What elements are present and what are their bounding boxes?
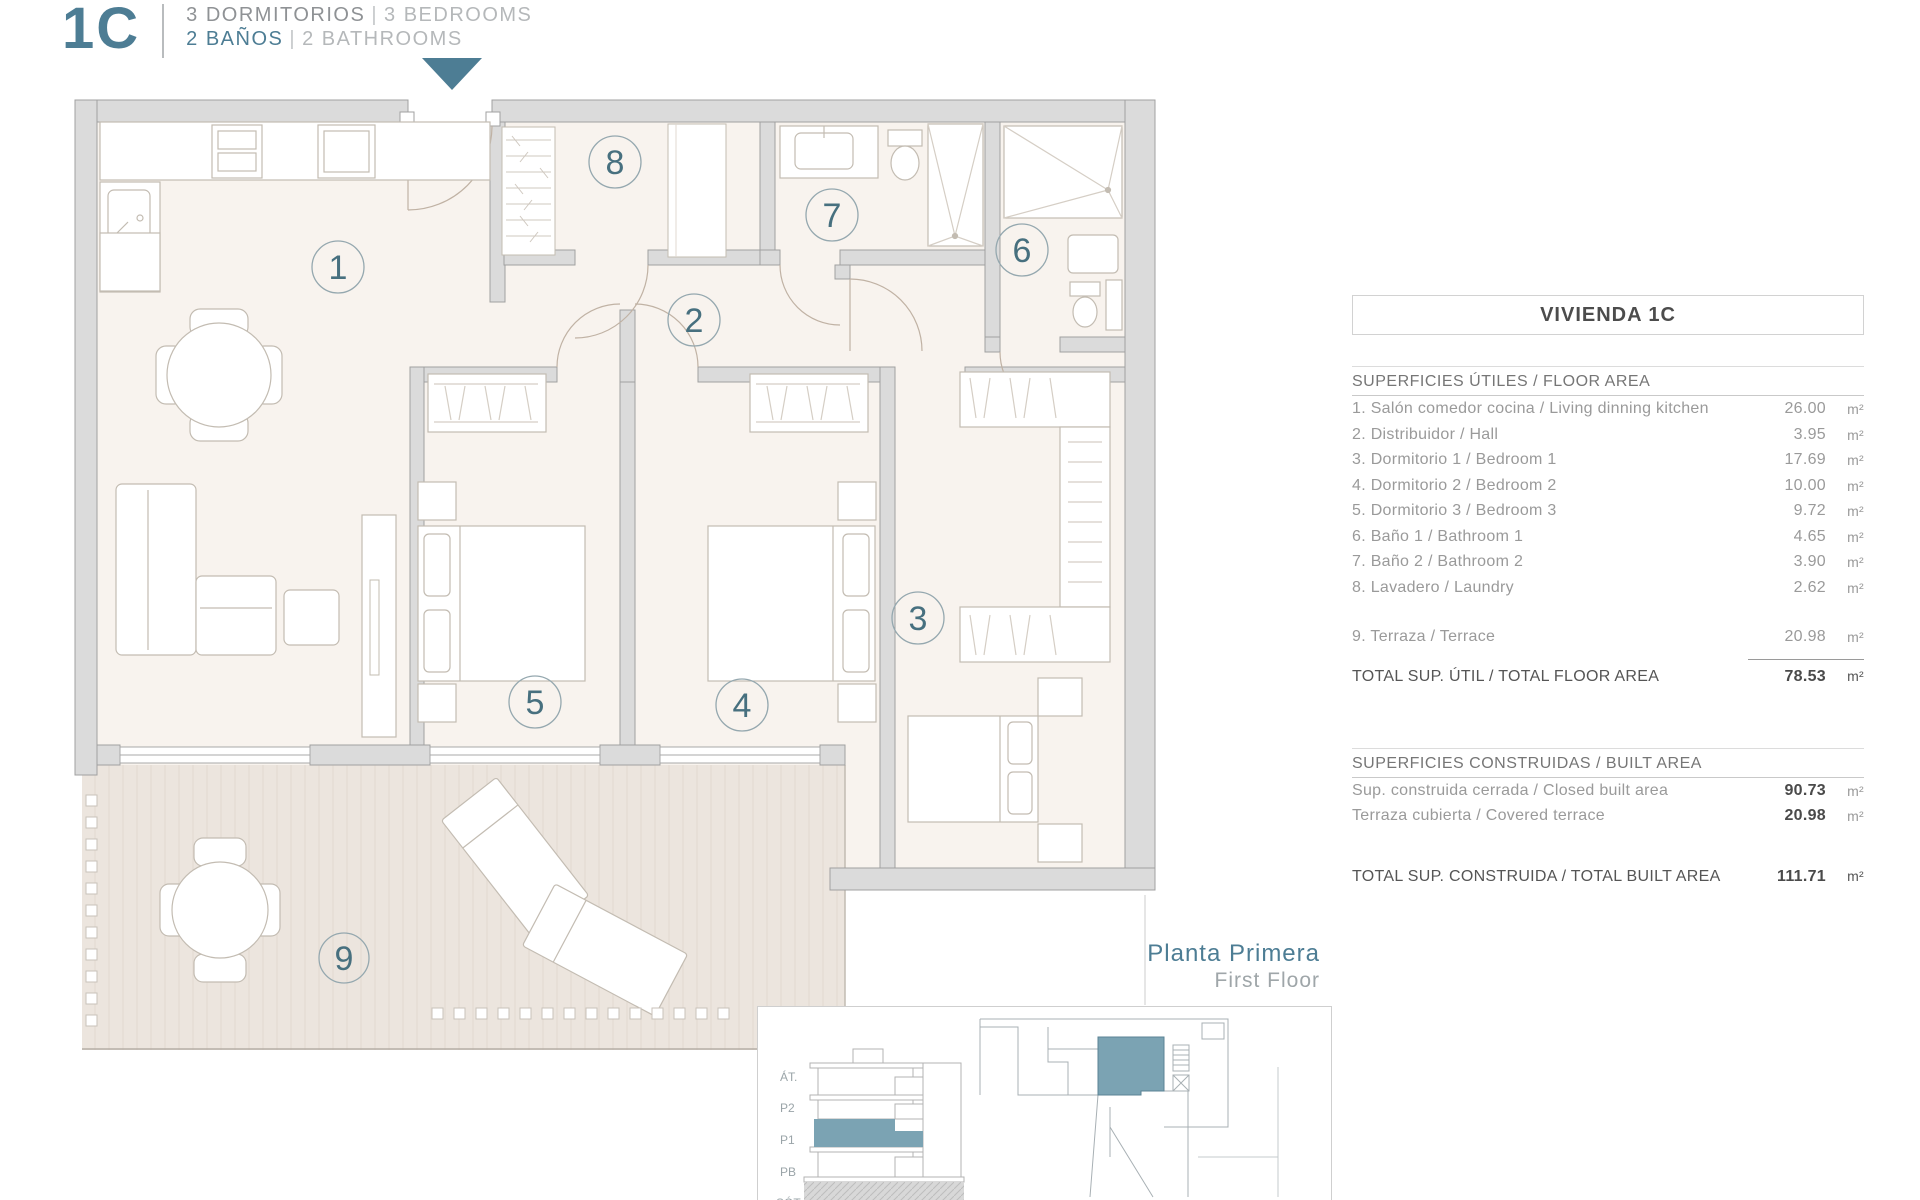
level-label: P2	[780, 1101, 795, 1115]
mini-diagrams-svg: ÁT. P2 P1 PB SÓT.	[758, 1007, 1333, 1200]
header-summary: 3 DORMITORIOS|3 BEDROOMS 2 BAÑOS|2 BATHR…	[186, 2, 532, 51]
location-diagrams: ÁT. P2 P1 PB SÓT.	[757, 1006, 1332, 1200]
nightstand	[1038, 678, 1082, 716]
towel-rail	[1106, 280, 1122, 330]
nightstand	[838, 684, 876, 722]
total-divider	[1748, 659, 1864, 660]
pillow	[843, 534, 869, 596]
floor-label-en: First Floor	[1020, 968, 1320, 994]
table-row: 5. Dormitorio 3 / Bedroom 39.72m²	[1352, 499, 1864, 524]
floorplan-page: { "header": { "unit": "1C", "sep": "|", …	[0, 0, 1920, 1200]
floor-plan: 1 2 3 4 5 6 7 8 9	[60, 50, 1160, 1070]
stairs-icon	[1173, 1045, 1189, 1091]
table-row: 6. Baño 1 / Bathroom 14.65m²	[1352, 525, 1864, 550]
pillow	[1008, 722, 1032, 764]
nightstand	[418, 482, 456, 520]
sink-icon	[795, 133, 853, 169]
built-area-section: SUPERFICIES CONSTRUIDAS / BUILT AREA Sup…	[1352, 748, 1864, 890]
table-row: 2. Distribuidor / Hall3.95m²	[1352, 423, 1864, 448]
sink-icon	[108, 190, 150, 238]
windows	[120, 747, 820, 763]
svg-text:9: 9	[335, 940, 354, 978]
highlighted-floor-p1	[895, 1131, 923, 1147]
bathrooms-es: 2 BAÑOS	[186, 28, 283, 50]
bathrooms-en: 2 BATHROOMS	[302, 28, 463, 50]
ottoman	[284, 590, 339, 645]
nightstand	[838, 482, 876, 520]
separator: |	[283, 28, 302, 50]
highlighted-unit-1c	[1098, 1037, 1164, 1095]
table-row: 3. Dormitorio 1 / Bedroom 117.69m²	[1352, 448, 1864, 473]
table-row: Terraza cubierta / Covered terrace20.98m…	[1352, 804, 1864, 829]
pillow	[424, 534, 450, 596]
table-row: 7. Baño 2 / Bathroom 23.90m²	[1352, 550, 1864, 575]
table-row: 9. Terraza / Terrace20.98m²	[1352, 625, 1864, 650]
floor-area-section: SUPERFICIES ÚTILES / FLOOR AREA 1. Salón…	[1352, 366, 1864, 690]
svg-text:2: 2	[685, 302, 704, 340]
kitchen-counter	[100, 122, 490, 180]
toilet-icon	[888, 130, 922, 146]
site-plan	[980, 1019, 1278, 1197]
highlighted-floor-p1	[814, 1119, 895, 1147]
table-title: VIVIENDA 1C	[1352, 295, 1864, 335]
bedrooms-line: 3 DORMITORIOS|3 BEDROOMS	[186, 3, 532, 27]
section-diagram: ÁT. P2 P1 PB SÓT.	[776, 1049, 964, 1200]
area-table: VIVIENDA 1C SUPERFICIES ÚTILES / FLOOR A…	[1352, 295, 1864, 890]
svg-text:8: 8	[606, 144, 625, 182]
nightstand	[418, 684, 456, 722]
table-row: 8. Lavadero / Laundry2.62m²	[1352, 576, 1864, 601]
bedrooms-es: 3 DORMITORIOS	[186, 4, 365, 26]
bedrooms-en: 3 BEDROOMS	[384, 4, 532, 26]
shower-icon	[928, 124, 983, 246]
svg-text:4: 4	[733, 687, 752, 725]
svg-text:6: 6	[1013, 232, 1032, 270]
level-label: P1	[780, 1133, 795, 1147]
floor-area-total: TOTAL SUP. ÚTIL / TOTAL FLOOR AREA78.53m…	[1352, 663, 1864, 690]
level-label: SÓT.	[776, 1195, 803, 1200]
table-row: 1. Salón comedor cocina / Living dinning…	[1352, 397, 1864, 422]
svg-text:7: 7	[823, 197, 842, 235]
floor-label: Planta Primera First Floor	[1020, 940, 1320, 994]
nightstand	[1038, 824, 1082, 862]
bathrooms-line: 2 BAÑOS|2 BATHROOMS	[186, 27, 532, 51]
shower-icon	[1004, 126, 1122, 218]
dining-table	[167, 323, 271, 427]
svg-text:3: 3	[909, 600, 928, 638]
unit-code: 1C	[62, 2, 140, 56]
table-row: Sup. construida cerrada / Closed built a…	[1352, 779, 1864, 804]
pillow	[424, 610, 450, 672]
kitchen-cabinet	[100, 233, 160, 291]
entrance-arrow-icon	[422, 58, 482, 90]
terrace-table	[172, 862, 268, 958]
svg-text:5: 5	[526, 684, 545, 722]
floor-label-es: Planta Primera	[1020, 940, 1320, 968]
level-label: PB	[780, 1165, 796, 1179]
hall-closet	[502, 127, 555, 255]
toilet-icon	[1070, 282, 1100, 296]
separator: |	[365, 4, 384, 26]
section-header: SUPERFICIES CONSTRUIDAS / BUILT AREA	[1352, 749, 1864, 778]
level-label: ÁT.	[780, 1069, 797, 1084]
section-header: SUPERFICIES ÚTILES / FLOOR AREA	[1352, 367, 1864, 396]
pillow	[1008, 772, 1032, 814]
svg-text:1: 1	[329, 249, 348, 287]
table-row: 4. Dormitorio 2 / Bedroom 210.00m²	[1352, 474, 1864, 499]
laundry-unit	[668, 124, 726, 257]
pillow	[843, 610, 869, 672]
built-area-total: TOTAL SUP. CONSTRUIDA / TOTAL BUILT AREA…	[1352, 863, 1864, 890]
sink-icon	[1068, 235, 1118, 273]
